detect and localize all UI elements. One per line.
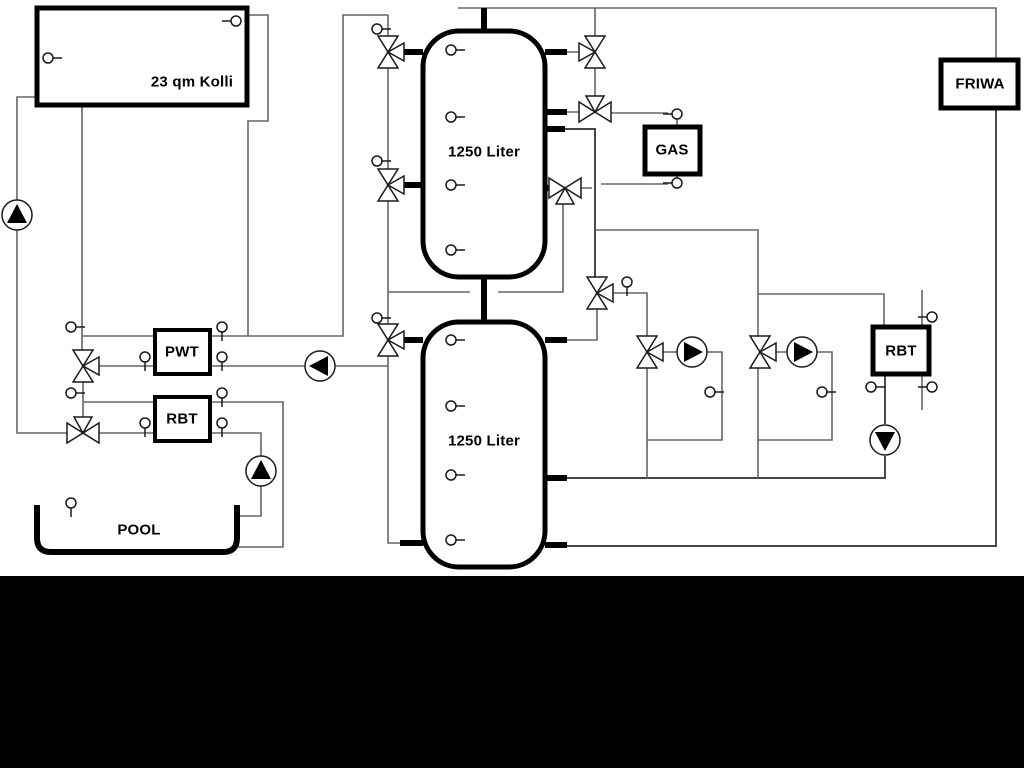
three-way-valve-tank1-left-bottom [378, 169, 404, 201]
tank1-right-stub-2 [545, 109, 567, 115]
three-way-valve-circuit2 [750, 336, 776, 368]
sensor-icon-gas-top [663, 109, 682, 119]
three-way-valve-circuit1 [637, 336, 663, 368]
three-way-valve-tank1-left-top [378, 36, 404, 68]
three-way-valve-tank1-right-top [579, 36, 605, 68]
pipe-heating-return [567, 374, 885, 478]
sensor-icon-circuit1 [705, 387, 724, 397]
pipe-midvalve-ports [567, 293, 647, 340]
tank1-label: 1250 Liter [448, 144, 520, 161]
tank1-top-pipe [481, 8, 487, 32]
pipe-friwa-return [567, 108, 996, 546]
three-way-valve-pwt [73, 350, 99, 382]
sensor-icon-rbtr-left [866, 382, 885, 392]
pipe-circuit1-loop [647, 352, 722, 478]
tank1-right-stub-1 [545, 49, 567, 55]
sensor-icon-rbtl-top-left [66, 388, 85, 398]
heating-system-schematic: 23 qm Kolli 1250 Liter 1250 Liter PWT RB… [0, 0, 1024, 768]
rbt-right-label: RBT [885, 343, 916, 360]
tank-link-pipe [481, 277, 487, 323]
black-bottom-region [0, 576, 1024, 768]
sensor-icon-pwt-bottom-left [140, 352, 150, 371]
rbt-left-label: RBT [166, 411, 197, 428]
pump-icon-rbt-right [870, 425, 900, 455]
tank1-right-stub-3 [545, 126, 565, 132]
pipe-left-riser [388, 15, 402, 543]
pipe-collector-return [17, 97, 67, 433]
tank2-bottom-left-stub [400, 540, 423, 546]
tank2-right-stub-2 [545, 475, 567, 481]
collector-label: 23 qm Kolli [151, 74, 233, 91]
pump-icon-circuit2 [787, 337, 817, 367]
pwt-label: PWT [165, 344, 199, 361]
sensor-icon-rbtr-top [918, 312, 937, 322]
pipe-distribution [595, 230, 884, 336]
sensor-icon-rbtl-top-right [217, 388, 227, 407]
pump-icon-circuit1 [677, 337, 707, 367]
sensor-icon-circuit2 [817, 387, 836, 397]
sensor-icon-gas-bottom [663, 178, 682, 188]
tank2-right-stub-1 [545, 337, 567, 343]
three-way-valve-tank2-left [378, 324, 404, 356]
three-way-valve-rbt-left [67, 417, 99, 443]
sensor-icon-pwt-top-right [217, 322, 227, 341]
three-way-valve-mid [587, 277, 613, 309]
tank2-right-stub-3 [545, 542, 567, 548]
pipe-collector-top [247, 15, 268, 336]
pump-icon-solar [2, 200, 32, 230]
sensor-icon-rbtl-bottom-left [140, 418, 150, 437]
sensor-icon-rbtl-bottom-right [217, 418, 227, 437]
friwa-label: FRIWA [955, 76, 1004, 93]
sensor-icon-pwt-bottom-right [217, 352, 227, 371]
three-way-valve-gas-return [549, 178, 581, 204]
three-way-valve-gas-supply [579, 96, 611, 122]
pipe-rbt-pool-in [99, 433, 261, 516]
sensor-icon-pool [66, 498, 76, 517]
pool-label: POOL [117, 522, 160, 539]
gas-label: GAS [655, 142, 688, 159]
pump-icon-pwt [305, 351, 335, 381]
pipe-circuit2-loop [758, 352, 832, 478]
pump-icon-pool [246, 456, 276, 486]
tank2-label: 1250 Liter [448, 433, 520, 450]
sensor-icon-rbtr-bottom [918, 382, 937, 392]
